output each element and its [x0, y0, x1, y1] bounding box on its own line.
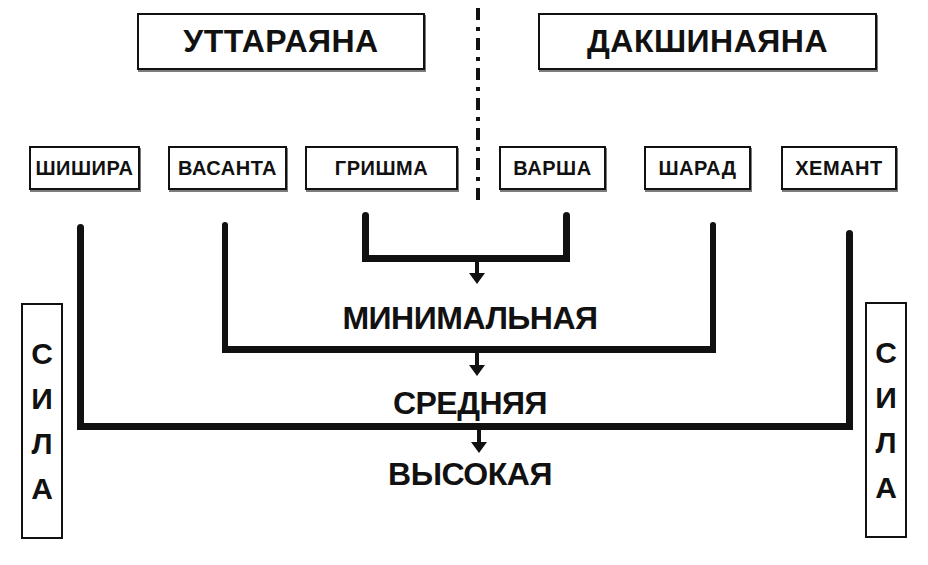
bracket-minimal-bottom-line: [362, 255, 570, 262]
arrow-to-high-head-icon: [471, 442, 487, 453]
arrow-to-minimal-head-icon: [469, 273, 485, 284]
sila-box-right: С И Л А: [865, 302, 907, 538]
sila-letter: Л: [875, 420, 896, 465]
season-box-grishma: ГРИШМА: [305, 146, 458, 190]
sila-letter: И: [875, 375, 897, 420]
season-box-shishira: ШИШИРА: [29, 146, 140, 190]
season-label-hemant: ХЕМАНТ: [795, 157, 882, 180]
season-label-sharad: ШАРАД: [658, 157, 736, 180]
solstice-divider-line: [476, 8, 480, 206]
level-label-medium: СРЕДНЯЯ: [286, 387, 654, 419]
arrow-to-medium-head-icon: [469, 365, 485, 376]
season-label-shishira: ШИШИРА: [36, 157, 134, 180]
bracket-high-right-line: [846, 230, 853, 430]
sila-letter: С: [31, 331, 53, 376]
bracket-high-bottom-line: [77, 423, 853, 430]
sila-letter: А: [31, 466, 53, 511]
season-label-varsha: ВАРША: [513, 157, 591, 180]
sila-letter: А: [875, 465, 897, 510]
sila-letter: И: [31, 376, 53, 421]
season-label-vasanta: ВАСАНТА: [178, 157, 277, 180]
season-box-vasanta: ВАСАНТА: [168, 146, 287, 190]
bracket-medium-left-line: [222, 222, 228, 353]
sila-box-left: С И Л А: [21, 303, 63, 539]
season-box-sharad: ШАРАД: [644, 146, 751, 190]
season-box-varsha: ВАРША: [499, 146, 606, 190]
ayana-label-dakshinayana: ДАКШИНАЯНА: [587, 23, 828, 60]
bracket-medium-right-line: [710, 222, 716, 353]
level-label-minimal: МИНИМАЛЬНАЯ: [286, 302, 654, 334]
ayana-label-uttarayana: УТТАРАЯНА: [183, 23, 378, 60]
bracket-high-left-line: [77, 224, 84, 430]
bracket-medium-bottom-line: [222, 346, 716, 353]
season-box-hemant: ХЕМАНТ: [781, 146, 897, 190]
sila-letter: Л: [31, 421, 52, 466]
level-label-high: ВЫСОКАЯ: [286, 458, 654, 490]
diagram-canvas: УТТАРАЯНА ДАКШИНАЯНА ШИШИРА ВАСАНТА ГРИШ…: [0, 0, 928, 565]
sila-letter: С: [875, 330, 897, 375]
ayana-box-dakshinayana: ДАКШИНАЯНА: [538, 13, 877, 70]
season-label-grishma: ГРИШМА: [335, 157, 428, 180]
ayana-box-uttarayana: УТТАРАЯНА: [137, 13, 425, 70]
